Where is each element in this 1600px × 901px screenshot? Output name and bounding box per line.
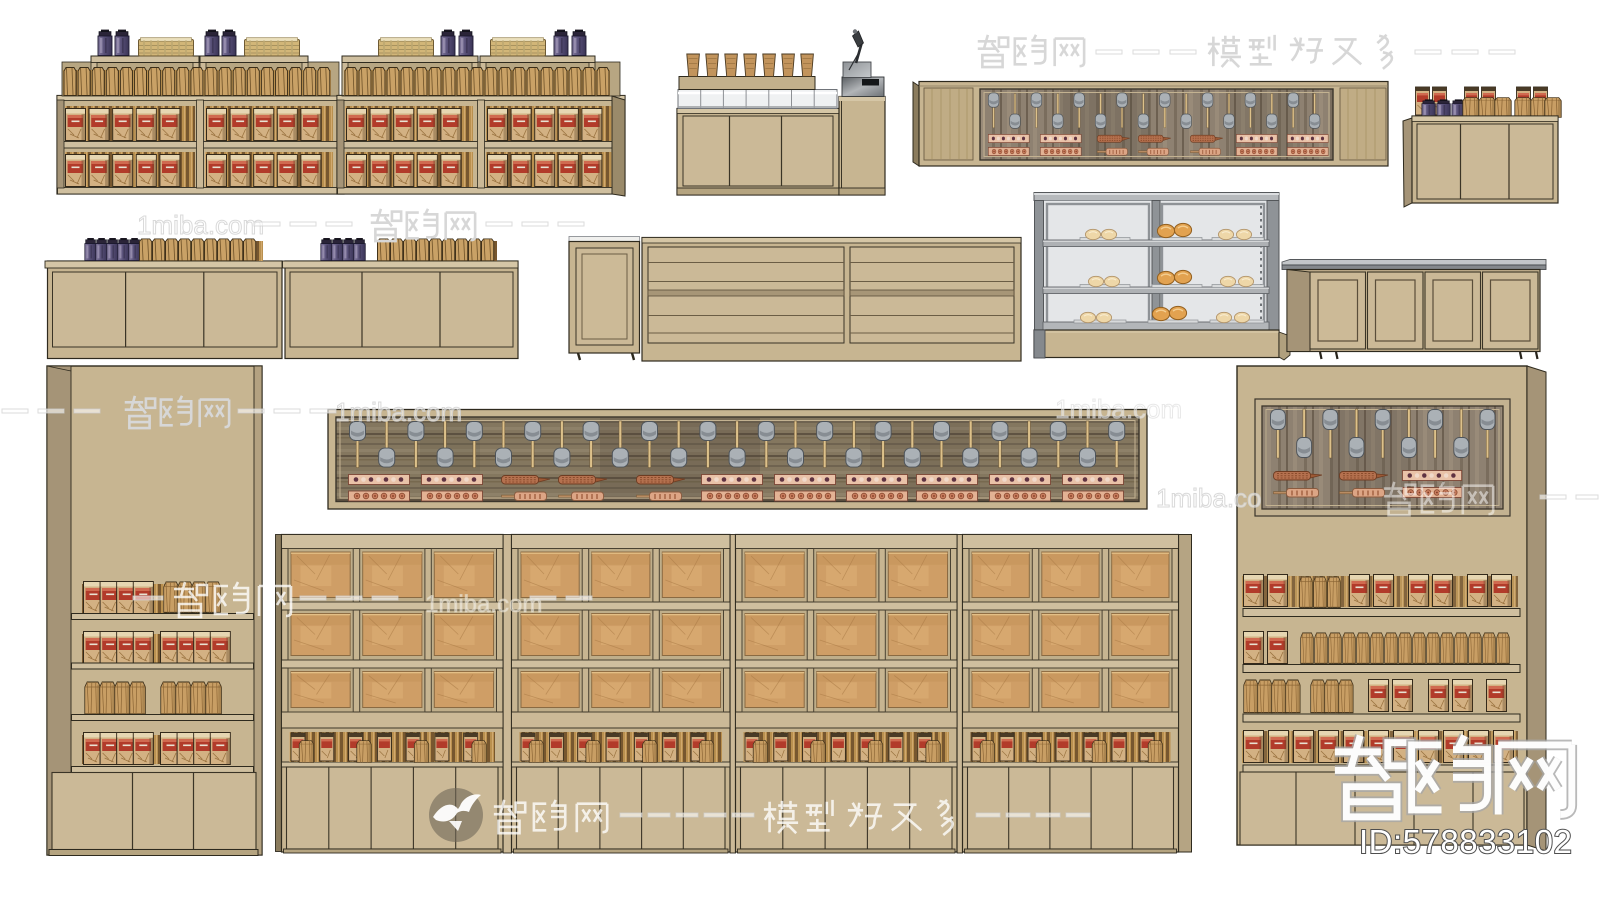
svg-text:ID:578833102: ID:578833102 — [1359, 823, 1572, 860]
svg-text:1miba.com: 1miba.com — [137, 210, 264, 240]
svg-text:1miba.com: 1miba.com — [335, 397, 462, 427]
svg-text:1miba.com: 1miba.com — [425, 591, 542, 618]
svg-text:1miba.com: 1miba.com — [1055, 394, 1182, 424]
svg-text:1miba.co: 1miba.co — [1156, 483, 1262, 513]
